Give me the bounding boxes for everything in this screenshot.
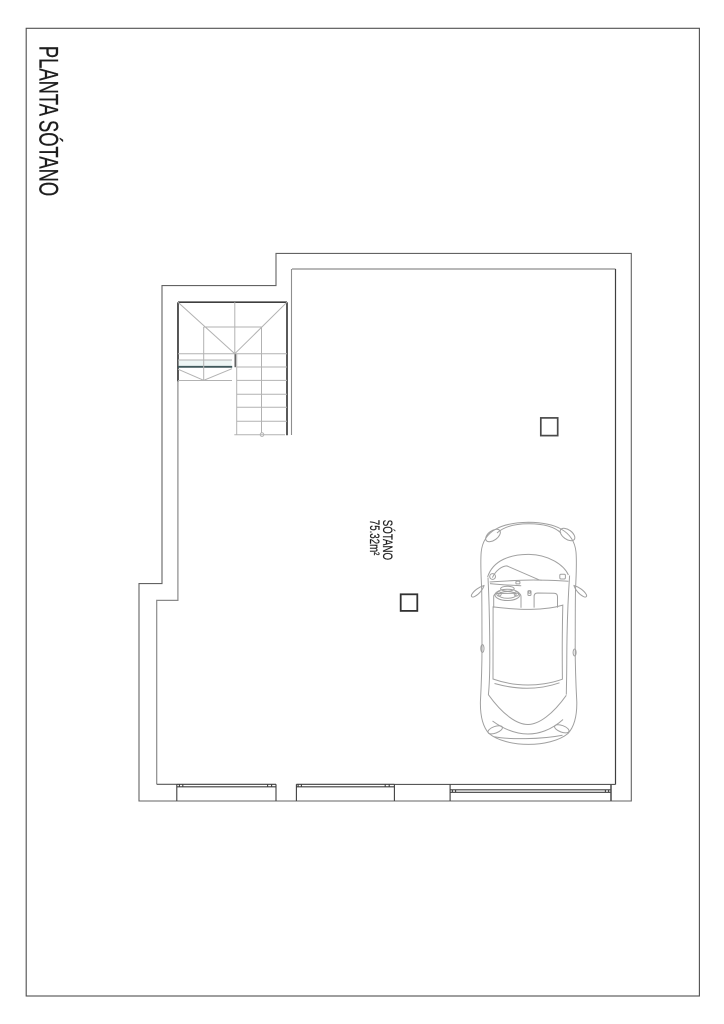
svg-text:PLANTA SÓTANO: PLANTA SÓTANO — [34, 46, 64, 196]
svg-text:SÓTANO75.32m²: SÓTANO75.32m² — [366, 520, 394, 560]
